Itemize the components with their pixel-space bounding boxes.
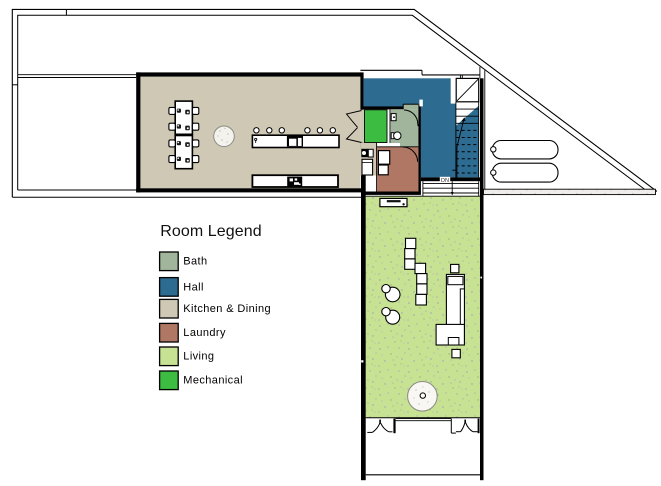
svg-text:DN: DN (441, 178, 449, 184)
svg-text:Hall: Hall (183, 281, 204, 293)
svg-text:Laundry: Laundry (183, 327, 226, 339)
svg-text:Living: Living (183, 351, 214, 363)
svg-text:Room Legend: Room Legend (160, 223, 262, 240)
svg-text:Mechanical: Mechanical (183, 375, 243, 387)
svg-text:Bath: Bath (183, 256, 207, 268)
svg-text:Kitchen & Dining: Kitchen & Dining (183, 303, 271, 315)
